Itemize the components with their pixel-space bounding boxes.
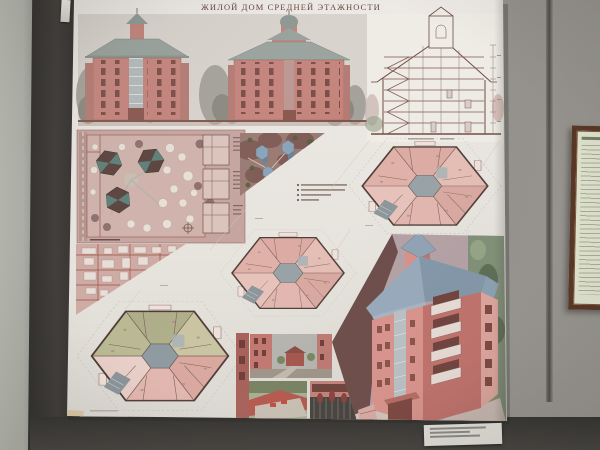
presentation-board: ЖИЛОЙ ДОМ СРЕДНЕЙ ЭТАЖНОСТИ [0, 0, 600, 450]
photo-of-architecture-poster-wall: ЖИЛОЙ ДОМ СРЕДНЕЙ ЭТАЖНОСТИ [0, 0, 600, 450]
exhibit-label [424, 423, 503, 446]
poster-lighting [60, 0, 512, 426]
exhibit-label-line [430, 435, 480, 438]
framed-document [568, 126, 600, 311]
framed-document-paper [575, 133, 600, 304]
exhibit-label-line [430, 431, 470, 434]
framed-document-heading [582, 137, 600, 141]
poster-title: ЖИЛОЙ ДОМ СРЕДНЕЙ ЭТАЖНОСТИ [201, 2, 381, 12]
framed-document-text-lines [578, 145, 600, 296]
exhibit-label-line [430, 426, 486, 429]
